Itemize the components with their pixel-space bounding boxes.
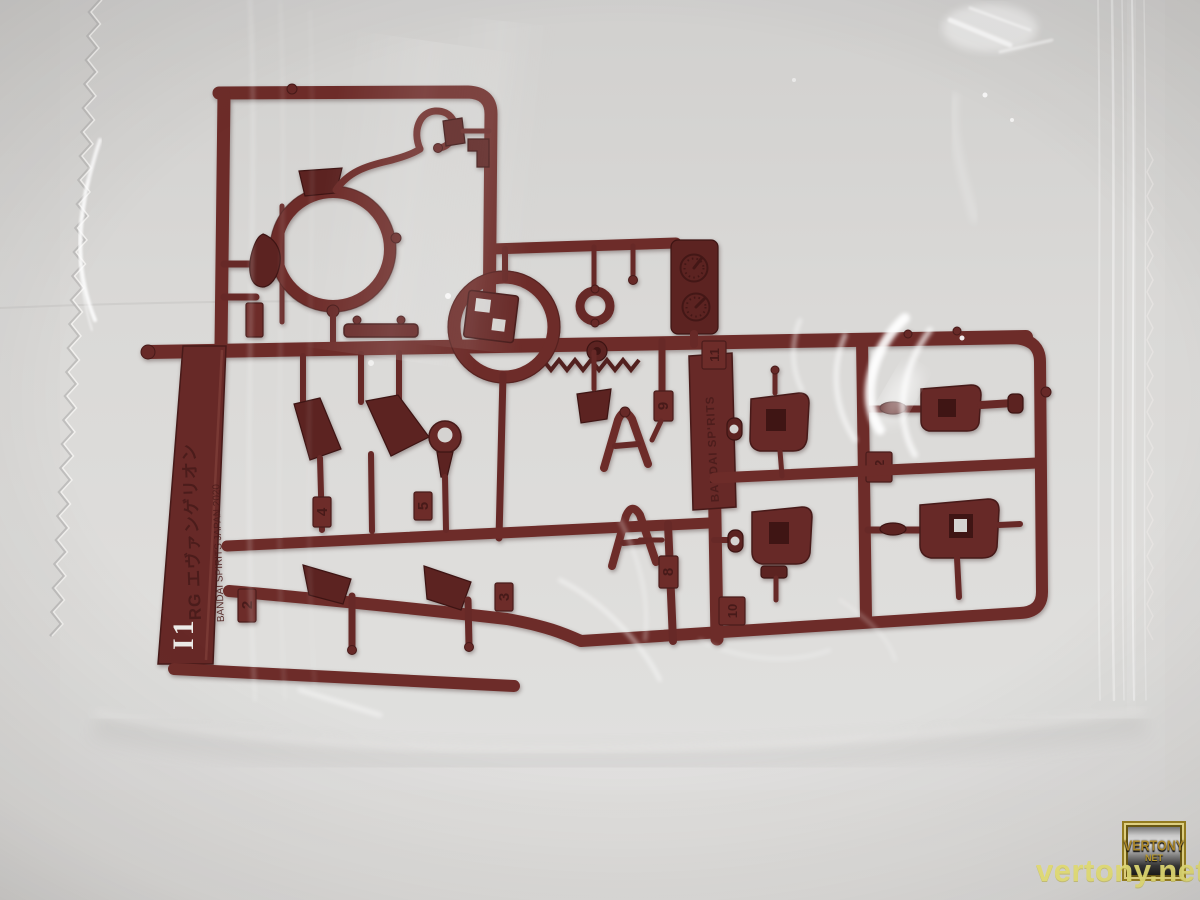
- gate-number-8: 8: [660, 568, 677, 576]
- gate: [957, 558, 959, 597]
- knob: [1008, 394, 1023, 413]
- cylinder-part-hole: [438, 428, 453, 443]
- photo-of-model-kit-runner-in-bag: RG エヴァンゲリオン BANDAI SPIRITS JAPAN 2020 I1…: [0, 0, 1200, 900]
- watermark-badge-title: VERTONY: [1124, 838, 1184, 854]
- part-nub: [620, 407, 630, 417]
- socket-through-hole: [954, 519, 967, 532]
- sparkle: [1010, 118, 1014, 122]
- socket-opening: [769, 522, 789, 544]
- gate-ball: [348, 646, 357, 655]
- sparkle: [445, 293, 451, 299]
- cylinder-hole: [731, 537, 740, 546]
- a-frame-crossbar: [615, 444, 638, 446]
- ring-gate-column: [499, 375, 503, 538]
- gate: [999, 524, 1020, 525]
- unnumbered-gate-tab: [246, 303, 263, 337]
- rail-nub: [287, 84, 297, 94]
- gate: [371, 454, 372, 531]
- seam-line: [1112, 0, 1114, 700]
- rail-nub: [904, 330, 912, 338]
- rail-end-ball: [141, 345, 155, 359]
- gate-number-2: 2: [239, 601, 256, 609]
- gate-number-10: 10: [725, 604, 740, 618]
- cylinder-hole: [730, 425, 739, 434]
- gate-number-3: 3: [496, 593, 513, 601]
- gate-ball: [465, 643, 474, 652]
- sparkle: [960, 336, 965, 341]
- gate: [780, 451, 782, 476]
- socket-opening: [938, 399, 956, 417]
- gate: [445, 477, 446, 530]
- gate: [468, 600, 469, 645]
- small-block: [761, 566, 787, 578]
- watermark-site-text: vertony.net: [1036, 853, 1200, 889]
- sparkle: [983, 93, 988, 98]
- gate-number-11: 11: [707, 348, 722, 362]
- gate-number-9: 9: [655, 402, 672, 410]
- runner-code-stencil: I1: [167, 617, 200, 650]
- photo-canvas: RG エヴァンゲリオン BANDAI SPIRITS JAPAN 2020 I1…: [0, 0, 1200, 900]
- washer-stub: [591, 285, 599, 293]
- bracket-part: [577, 389, 611, 423]
- top-left-rail: [221, 95, 224, 346]
- socket-opening: [766, 409, 786, 431]
- gate-ball: [629, 276, 638, 285]
- gate-bulge: [880, 523, 906, 535]
- rail-nub: [953, 327, 961, 335]
- sparkle: [368, 360, 374, 366]
- gate-number-5: 5: [415, 502, 432, 510]
- seam-line: [1098, 0, 1100, 700]
- washer-stub: [591, 319, 599, 327]
- sparkle: [792, 78, 796, 82]
- gate-ball: [771, 366, 779, 374]
- gate-number-4: 4: [314, 507, 331, 516]
- seam-line: [1132, 0, 1134, 700]
- rail-nub: [1041, 387, 1051, 397]
